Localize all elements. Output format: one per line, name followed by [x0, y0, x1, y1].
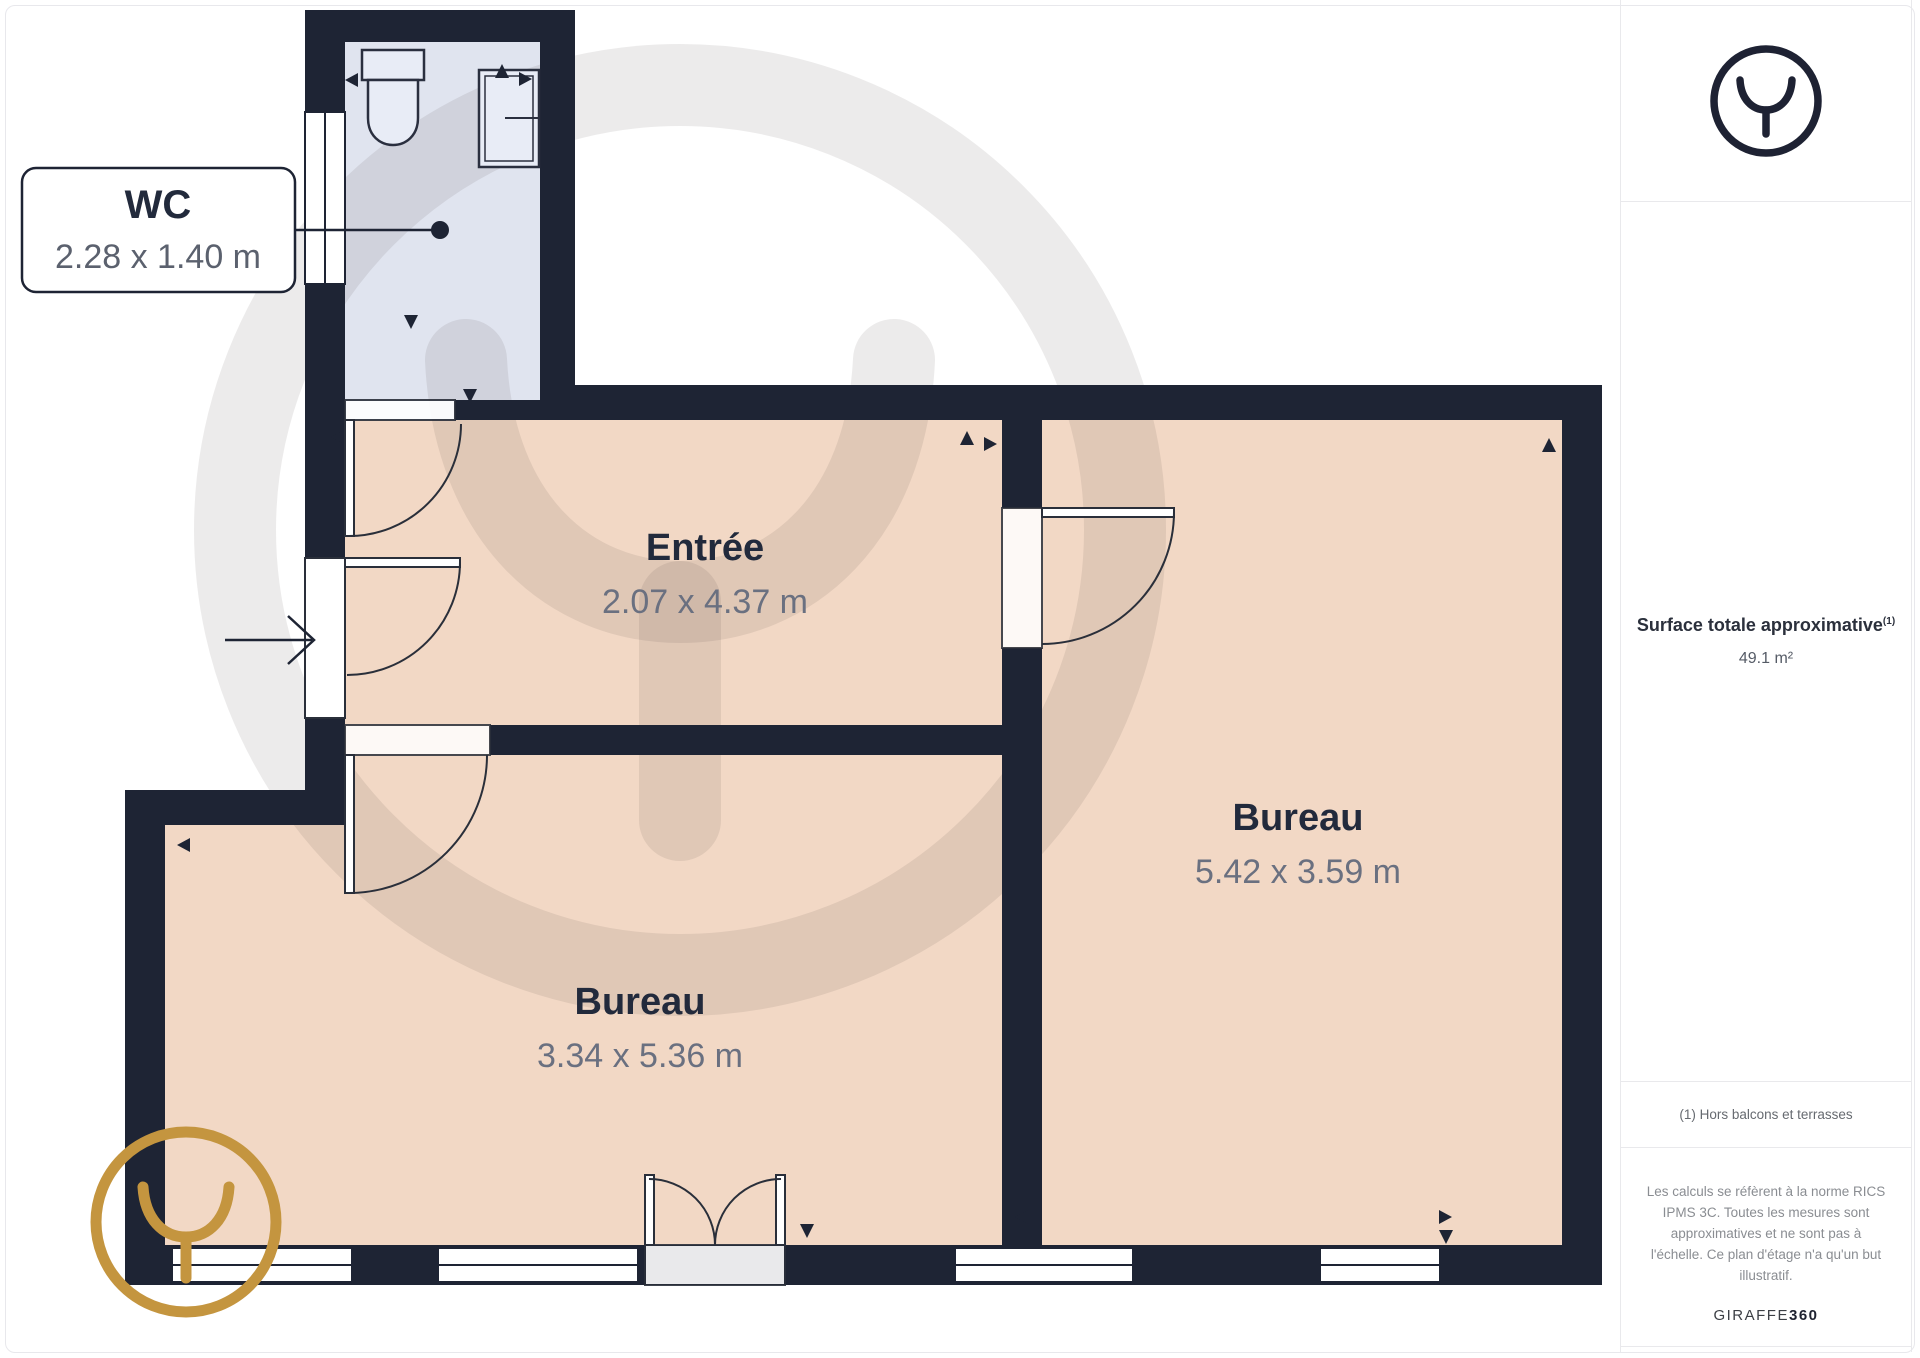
footnote-text: (1) Hors balcons et terrasses: [1679, 1107, 1852, 1122]
surface-total-section: Surface totale approximative(1) 49.1 m²: [1621, 202, 1911, 1082]
footnote-section: (1) Hors balcons et terrasses: [1621, 1082, 1911, 1148]
info-sidebar: Surface totale approximative(1) 49.1 m² …: [1620, 0, 1912, 1352]
surface-footnote-ref: (1): [1883, 616, 1895, 627]
window: [438, 1248, 638, 1282]
room-label-bureau-right: Bureau: [1233, 797, 1364, 839]
floorplan-page: WC 2.28 x 1.40 m Entrée 2.07 x 4.37 m Bu…: [0, 0, 1920, 1358]
surface-total-value: 49.1 m²: [1739, 650, 1793, 668]
giraffe360-wordmark: GIRAFFE360: [1645, 1307, 1887, 1324]
toilet-icon: [362, 50, 424, 145]
window: [955, 1248, 1133, 1282]
room-dims-bureau-lower: 3.34 x 5.36 m: [537, 1037, 743, 1075]
surface-total-label: Surface totale approximative(1): [1637, 615, 1895, 636]
disclaimer-section: Les calculs se réfèrent à la norme RICS …: [1621, 1148, 1911, 1347]
wc-label: WC: [125, 183, 192, 227]
window: [305, 112, 345, 284]
callout-anchor-dot: [431, 221, 449, 239]
sidebar-logo-section: [1621, 0, 1911, 202]
room-dims-bureau-right: 5.42 x 3.59 m: [1195, 853, 1401, 891]
disclaimer-text: Les calculs se réfèrent à la norme RICS …: [1645, 1182, 1887, 1287]
room-label-bureau-lower: Bureau: [575, 981, 706, 1023]
wc-dims: 2.28 x 1.40 m: [55, 238, 261, 276]
sink-icon: [479, 70, 539, 167]
room-label-entree: Entrée: [646, 527, 764, 569]
giraffe360-logo-icon: [1708, 43, 1824, 159]
window: [1320, 1248, 1440, 1282]
room-dims-entree: 2.07 x 4.37 m: [602, 583, 808, 621]
